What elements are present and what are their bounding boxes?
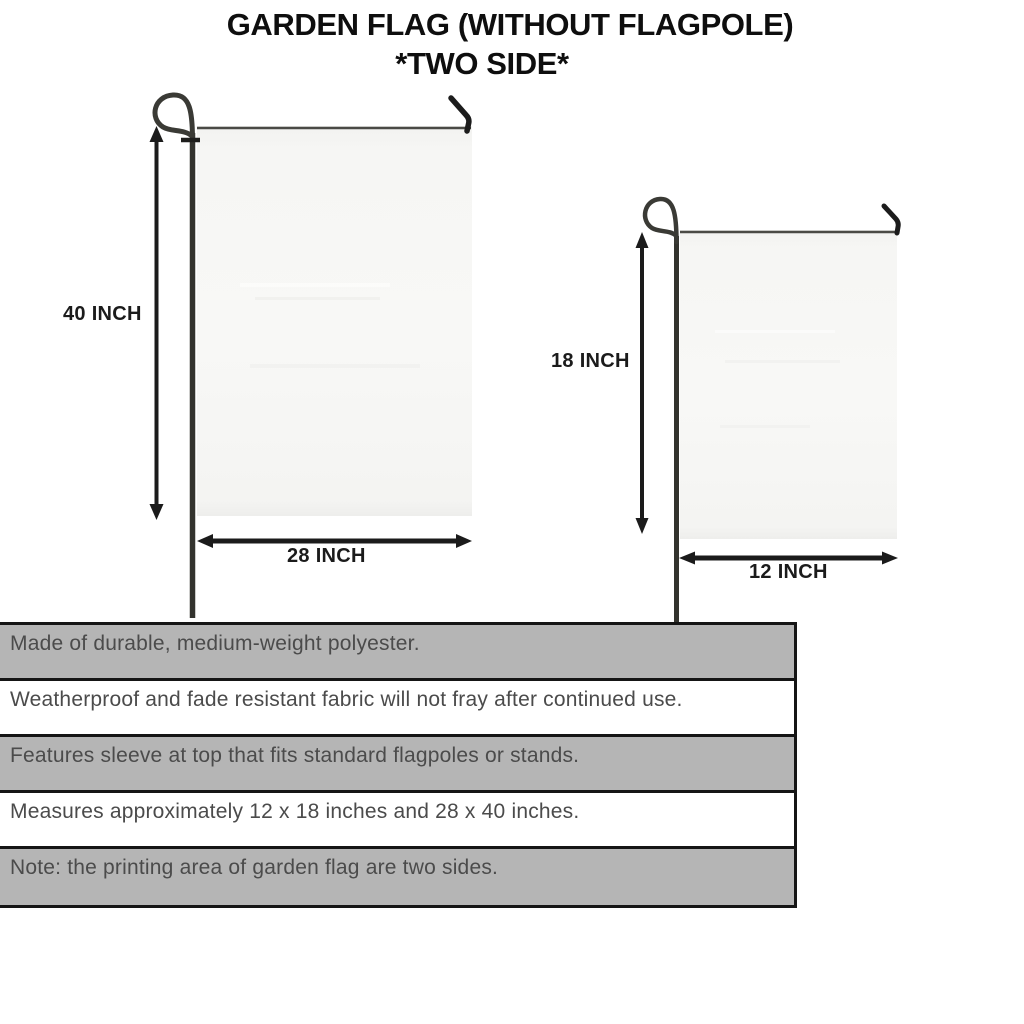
small-flag-height-arrow [636, 232, 649, 534]
feature-text: Made of durable, medium-weight polyester… [10, 632, 420, 655]
large-flag-diagram [150, 95, 473, 618]
large-flag-wrinkle [250, 364, 420, 368]
small-flagpole-loop [645, 199, 676, 242]
small-flag-height-label: 18 INCH [551, 350, 630, 373]
feature-row-sleeve: Features sleeve at top that fits standar… [0, 737, 794, 793]
features-table: Made of durable, medium-weight polyester… [0, 622, 797, 908]
large-flag-panel [197, 126, 472, 516]
small-flag-width-label: 12 INCH [749, 561, 828, 584]
product-info-image: GARDEN FLAG (WITHOUT FLAGPOLE) *TWO SIDE… [0, 0, 1024, 1024]
small-flagpole-hook [884, 206, 898, 233]
small-flag-wrinkle [715, 330, 835, 333]
feature-text: Features sleeve at top that fits standar… [10, 744, 579, 767]
feature-text: Note: the printing area of garden flag a… [10, 856, 498, 879]
small-flag-panel [680, 230, 897, 539]
large-flagpole-loop [155, 95, 193, 140]
feature-row-weatherproof: Weatherproof and fade resistant fabric w… [0, 681, 794, 737]
feature-text: Measures approximately 12 x 18 inches an… [10, 800, 579, 823]
large-flag-width-label: 28 INCH [287, 545, 366, 568]
feature-row-measures: Measures approximately 12 x 18 inches an… [0, 793, 794, 849]
large-flag-wrinkle [255, 297, 380, 300]
large-flag-wrinkle [240, 283, 390, 287]
small-flag-diagram [636, 199, 899, 622]
small-flag-wrinkle [720, 425, 810, 428]
large-flag-height-label: 40 INCH [63, 303, 142, 326]
feature-row-note: Note: the printing area of garden flag a… [0, 849, 794, 905]
feature-text: Weatherproof and fade resistant fabric w… [10, 688, 683, 711]
feature-row-material: Made of durable, medium-weight polyester… [0, 625, 794, 681]
large-flag-height-arrow [150, 126, 164, 520]
small-flag-wrinkle [725, 360, 840, 363]
